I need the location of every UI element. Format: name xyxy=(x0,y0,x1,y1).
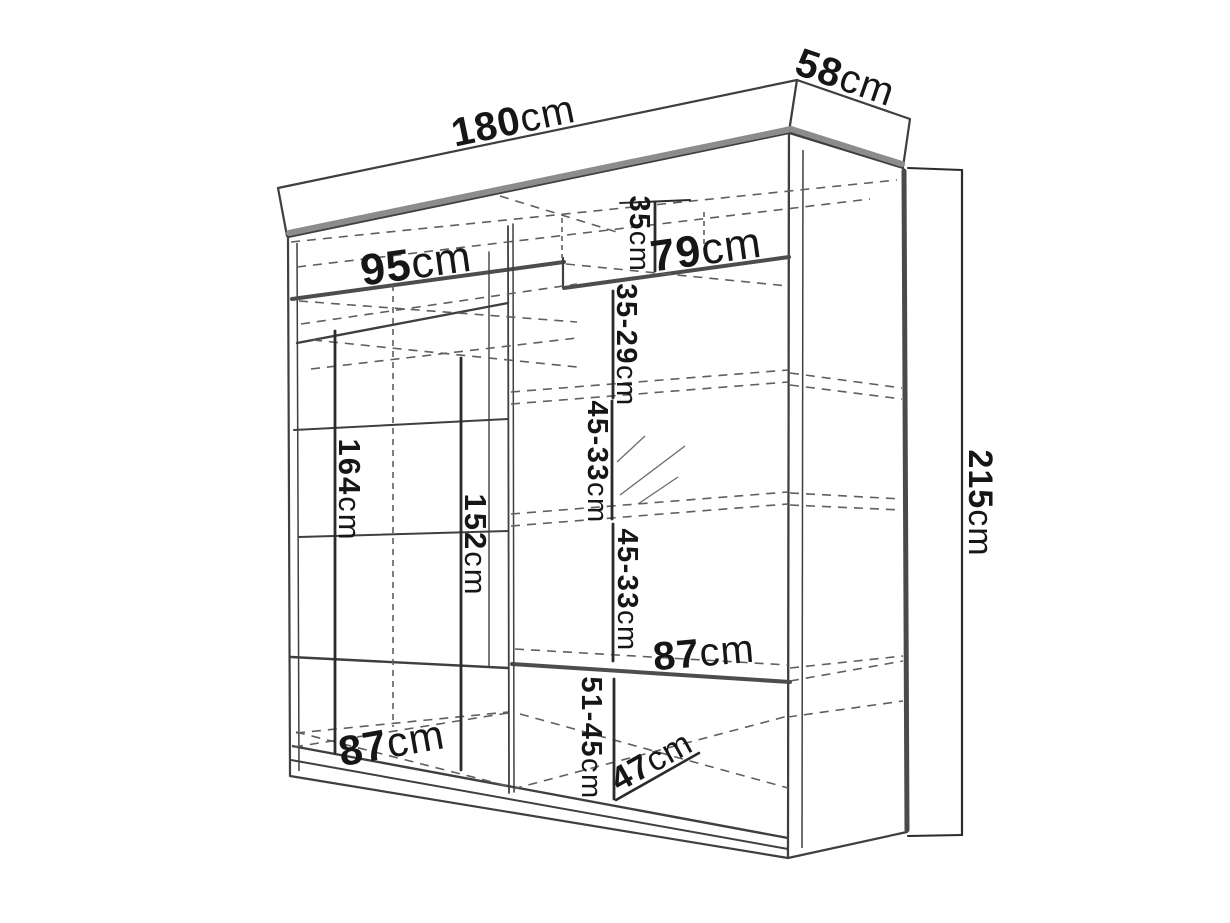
label-35-29-value: 35-29 xyxy=(610,283,642,365)
label-45-33-a: 45-33cm xyxy=(581,400,613,523)
diagram-canvas: 180cm 58cm 215cm 95cm 79cm 35cm 35-29cm … xyxy=(0,0,1230,923)
label-51-45-unit: cm xyxy=(575,758,607,800)
label-45-33-b-unit: cm xyxy=(611,610,643,652)
label-164-value: 164 xyxy=(332,438,367,496)
label-45-33-a-unit: cm xyxy=(581,482,613,524)
label-top-left-value: 95 xyxy=(357,240,414,295)
inner-right-wall xyxy=(802,150,803,848)
label-152: 152cm xyxy=(458,493,493,596)
label-87-left-value: 87 xyxy=(335,720,391,775)
label-164: 164cm xyxy=(332,438,367,541)
label-87-right-unit: cm xyxy=(698,627,757,676)
partition-b xyxy=(513,224,514,792)
label-87-right: 87cm xyxy=(651,627,756,680)
label-45-33-b-value: 45-33 xyxy=(611,528,643,610)
label-35-29: 35-29cm xyxy=(610,283,642,406)
label-152-unit: cm xyxy=(458,551,493,596)
label-87-left-unit: cm xyxy=(383,710,448,766)
label-top-left-unit: cm xyxy=(408,232,475,289)
label-51-45-value: 51-45 xyxy=(575,676,607,758)
label-35: 35cm xyxy=(623,196,655,273)
label-height-unit: cm xyxy=(961,509,999,556)
partition-a xyxy=(508,226,509,793)
label-35-29-unit: cm xyxy=(610,365,642,407)
dim-tick-215-bottom xyxy=(908,835,962,836)
label-35-value: 35 xyxy=(623,196,655,231)
label-51-45: 51-45cm xyxy=(575,676,607,799)
label-top-right-unit: cm xyxy=(698,218,765,275)
label-45-33-a-value: 45-33 xyxy=(581,400,613,482)
label-87-right-value: 87 xyxy=(651,632,701,680)
label-45-33-b: 45-33cm xyxy=(611,528,643,651)
label-164-unit: cm xyxy=(332,496,367,541)
label-height-value: 215 xyxy=(961,449,999,509)
back-right-edge xyxy=(904,171,907,830)
label-35-unit: cm xyxy=(623,231,655,273)
wardrobe-dimension-diagram: 180cm 58cm 215cm 95cm 79cm 35cm 35-29cm … xyxy=(0,0,1230,923)
label-152-value: 152 xyxy=(458,493,493,551)
label-height-215: 215cm xyxy=(961,449,999,556)
right-side-face xyxy=(788,133,907,858)
dim-tick-215-top xyxy=(908,168,962,170)
